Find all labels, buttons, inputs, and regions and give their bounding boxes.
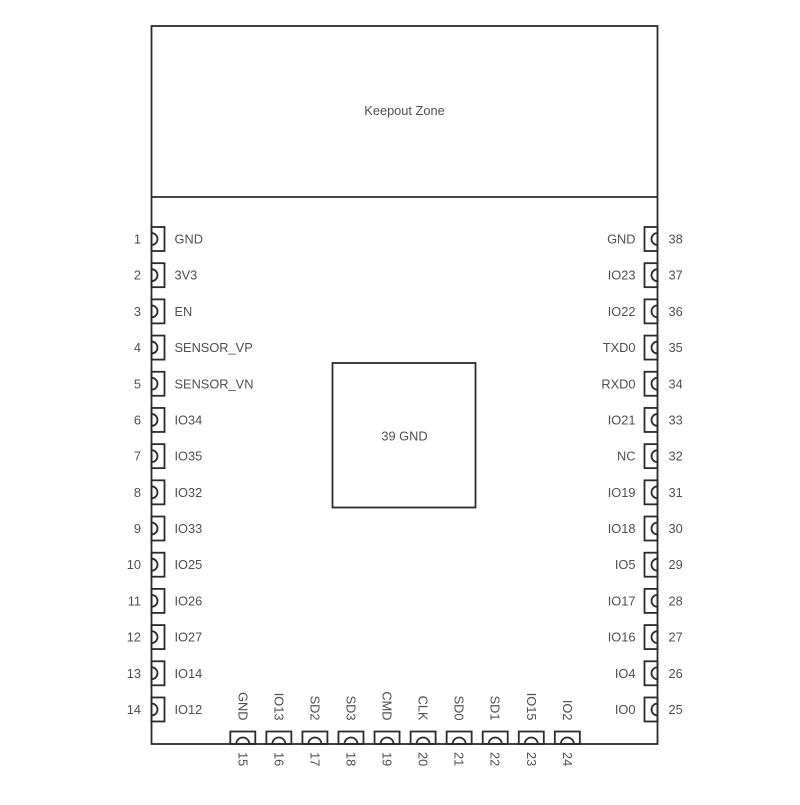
svg-text:34: 34 bbox=[669, 376, 683, 391]
svg-text:IO18: IO18 bbox=[608, 521, 636, 536]
svg-text:IO27: IO27 bbox=[175, 630, 203, 645]
svg-text:IO4: IO4 bbox=[615, 666, 636, 681]
svg-text:IO17: IO17 bbox=[608, 593, 636, 608]
svg-text:37: 37 bbox=[669, 268, 683, 283]
svg-text:7: 7 bbox=[134, 449, 141, 464]
svg-text:14: 14 bbox=[127, 702, 141, 717]
svg-text:IO32: IO32 bbox=[175, 485, 203, 500]
svg-text:23: 23 bbox=[524, 752, 539, 766]
svg-text:IO12: IO12 bbox=[175, 702, 203, 717]
svg-text:IO21: IO21 bbox=[608, 412, 636, 427]
svg-text:IO5: IO5 bbox=[615, 557, 636, 572]
svg-text:26: 26 bbox=[669, 666, 683, 681]
svg-text:8: 8 bbox=[134, 485, 141, 500]
svg-text:5: 5 bbox=[134, 376, 141, 391]
svg-text:Keepout Zone: Keepout Zone bbox=[364, 103, 444, 118]
svg-text:25: 25 bbox=[669, 702, 683, 717]
svg-text:GND: GND bbox=[235, 692, 250, 720]
svg-text:20: 20 bbox=[416, 752, 431, 766]
svg-text:IO0: IO0 bbox=[615, 702, 636, 717]
svg-text:32: 32 bbox=[669, 449, 683, 464]
svg-text:RXD0: RXD0 bbox=[601, 376, 635, 391]
svg-text:3: 3 bbox=[134, 304, 141, 319]
svg-text:SENSOR_VP: SENSOR_VP bbox=[175, 340, 253, 355]
svg-text:CLK: CLK bbox=[416, 696, 431, 721]
svg-text:4: 4 bbox=[134, 340, 141, 355]
svg-text:SD3: SD3 bbox=[343, 696, 358, 721]
svg-text:IO14: IO14 bbox=[175, 666, 203, 681]
svg-text:16: 16 bbox=[271, 752, 286, 766]
svg-text:13: 13 bbox=[127, 666, 141, 681]
svg-text:6: 6 bbox=[134, 412, 141, 427]
svg-text:33: 33 bbox=[669, 412, 683, 427]
svg-text:11: 11 bbox=[128, 593, 141, 608]
svg-text:NC: NC bbox=[617, 449, 635, 464]
svg-text:22: 22 bbox=[488, 752, 503, 766]
svg-text:EN: EN bbox=[175, 304, 193, 319]
svg-text:IO2: IO2 bbox=[560, 700, 575, 721]
svg-text:SD2: SD2 bbox=[307, 696, 322, 721]
svg-text:30: 30 bbox=[669, 521, 683, 536]
svg-text:IO26: IO26 bbox=[175, 593, 203, 608]
svg-text:9: 9 bbox=[134, 521, 141, 536]
svg-text:27: 27 bbox=[669, 630, 683, 645]
svg-text:GND: GND bbox=[175, 232, 203, 247]
svg-text:IO15: IO15 bbox=[524, 693, 539, 721]
svg-text:IO25: IO25 bbox=[175, 557, 203, 572]
svg-text:IO34: IO34 bbox=[175, 412, 203, 427]
svg-text:IO33: IO33 bbox=[175, 521, 203, 536]
svg-text:IO19: IO19 bbox=[608, 485, 636, 500]
svg-text:TXD0: TXD0 bbox=[603, 340, 636, 355]
svg-text:10: 10 bbox=[127, 557, 141, 572]
svg-text:19: 19 bbox=[380, 752, 395, 766]
svg-text:24: 24 bbox=[560, 752, 575, 766]
svg-text:36: 36 bbox=[669, 304, 683, 319]
svg-text:IO35: IO35 bbox=[175, 449, 203, 464]
svg-text:SD0: SD0 bbox=[452, 696, 467, 721]
svg-text:SENSOR_VN: SENSOR_VN bbox=[175, 376, 254, 391]
svg-text:29: 29 bbox=[669, 557, 683, 572]
svg-text:SD1: SD1 bbox=[488, 696, 503, 721]
svg-text:35: 35 bbox=[669, 340, 683, 355]
svg-text:21: 21 bbox=[452, 752, 467, 766]
svg-text:3V3: 3V3 bbox=[175, 268, 198, 283]
svg-text:IO16: IO16 bbox=[608, 630, 636, 645]
svg-text:IO22: IO22 bbox=[608, 304, 636, 319]
svg-text:12: 12 bbox=[127, 630, 141, 645]
svg-text:39 GND: 39 GND bbox=[381, 429, 427, 444]
svg-text:IO23: IO23 bbox=[608, 268, 636, 283]
svg-text:28: 28 bbox=[669, 593, 683, 608]
svg-text:CMD: CMD bbox=[380, 691, 395, 720]
svg-text:18: 18 bbox=[343, 752, 358, 766]
svg-text:GND: GND bbox=[607, 232, 635, 247]
svg-text:IO13: IO13 bbox=[271, 693, 286, 721]
svg-text:38: 38 bbox=[669, 232, 683, 247]
svg-text:2: 2 bbox=[134, 268, 141, 283]
svg-text:31: 31 bbox=[669, 485, 683, 500]
svg-text:1: 1 bbox=[134, 232, 141, 247]
svg-text:15: 15 bbox=[235, 752, 250, 766]
svg-text:17: 17 bbox=[307, 752, 322, 766]
